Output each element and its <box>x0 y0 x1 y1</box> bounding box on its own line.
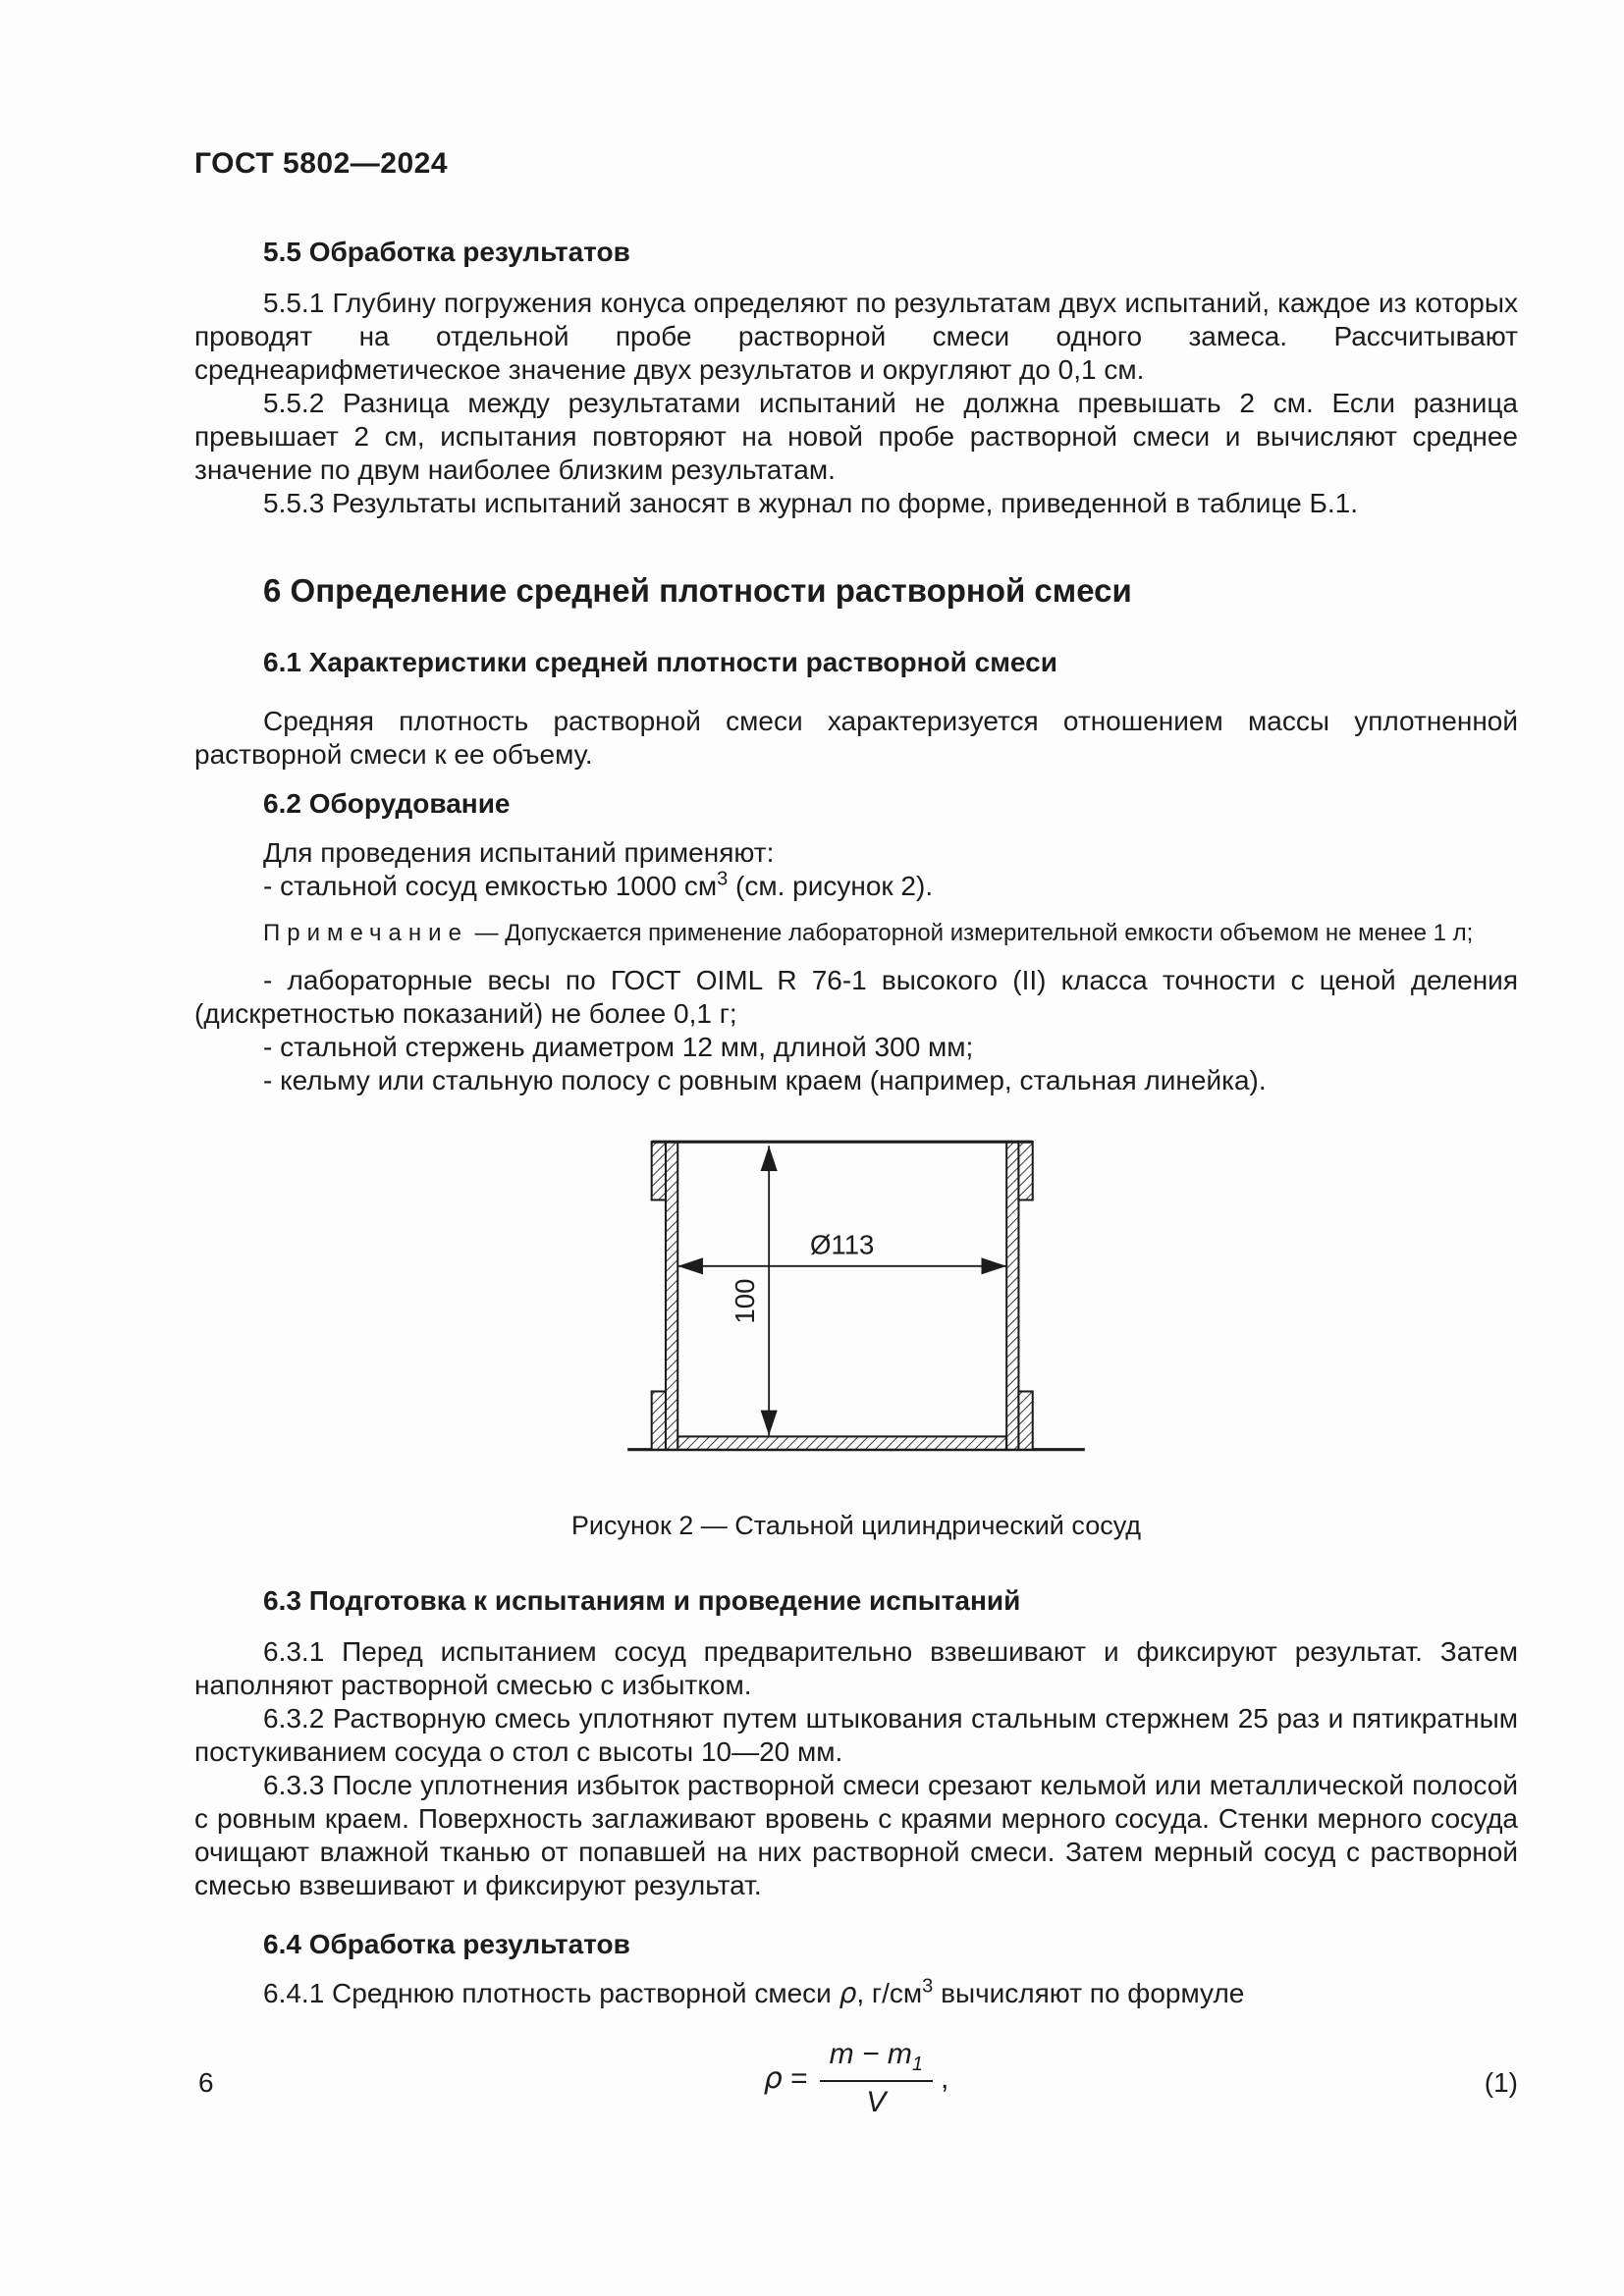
vessel-right-wall <box>1006 1142 1018 1450</box>
vessel-left-top-flange <box>652 1142 666 1200</box>
formula-lhs-rho: ρ <box>764 2061 783 2096</box>
paragraph-5-5-1: 5.5.1 Глубину погружения конуса определя… <box>194 287 1518 387</box>
list-item-text: - стальной сосуд емкостью 1000 см <box>263 871 717 901</box>
heading-6-3: 6.3 Подготовка к испытаниям и проведение… <box>194 1584 1518 1618</box>
vessel-right-top-flange <box>1018 1142 1032 1200</box>
formula-equals: = <box>790 2062 808 2096</box>
paragraph-6-3-1: 6.3.1 Перед испытанием сосуд предварител… <box>194 1635 1518 1702</box>
paragraph-5-5-2: 5.5.2 Разница между результатами испытан… <box>194 387 1518 487</box>
dimension-label-height: 100 <box>730 1279 760 1324</box>
formula-numerator-subscript: 1 <box>912 2054 923 2075</box>
vessel-left-bottom-flange <box>652 1391 666 1449</box>
formula-denominator-var: V <box>866 2086 886 2118</box>
note-text: — Допускается применение лабораторной из… <box>475 920 1474 946</box>
formula-denominator: V <box>820 2082 933 2119</box>
heading-6-4: 6.4 Обработка результатов <box>194 1928 1518 1961</box>
formula-fraction: m − m1 V <box>820 2038 933 2119</box>
note-measuring-vessel: Примечание — Допускается применение лабо… <box>194 919 1518 948</box>
paragraph-6-2-intro: Для проведения испытаний применяют: <box>194 836 1518 870</box>
list-item-steel-rod: - стальной стержень диаметром 12 мм, дли… <box>194 1031 1518 1064</box>
heading-section-6: 6 Определение средней плотности растворн… <box>194 571 1518 611</box>
page-number: 6 <box>198 2067 214 2099</box>
paragraph-text: , г/см <box>856 1978 922 2008</box>
formula-row: ρ = m − m1 V , (1) <box>194 2038 1518 2156</box>
list-item-trowel: - кельму или стальную полосу с ровным кр… <box>194 1064 1518 1097</box>
figure-2-steel-vessel: 100 Ø113 <box>194 1133 1518 1468</box>
list-item-text: (см. рисунок 2). <box>728 871 933 901</box>
vessel-right-bottom-flange <box>1018 1391 1032 1449</box>
document-code-header: ГОСТ 5802—2024 <box>194 147 1518 181</box>
list-item-steel-vessel: - стальной сосуд емкостью 1000 см3 (см. … <box>194 870 1518 903</box>
formula-number: (1) <box>1485 2067 1518 2099</box>
heading-5-5: 5.5 Обработка результатов <box>194 236 1518 269</box>
figure-2-caption: Рисунок 2 — Стальной цилиндрический сосу… <box>194 1510 1518 1541</box>
page-content: ГОСТ 5802—2024 5.5 Обработка результатов… <box>194 147 1518 2156</box>
density-formula: ρ = m − m1 V , <box>194 2038 1518 2119</box>
document-page: ГОСТ 5802—2024 5.5 Обработка результатов… <box>0 0 1624 2296</box>
paragraph-5-5-3: 5.5.3 Результаты испытаний заносят в жур… <box>194 487 1518 520</box>
paragraph-6-3-2: 6.3.2 Растворную смесь уплотняют путем ш… <box>194 1702 1518 1769</box>
rho-symbol: ρ <box>839 1977 857 2009</box>
formula-comma: , <box>941 2062 948 2096</box>
formula-numerator-vars: m − m <box>830 2038 912 2070</box>
steel-vessel-drawing: 100 Ø113 <box>625 1133 1087 1464</box>
note-label: Примечание <box>263 920 468 946</box>
superscript-3: 3 <box>717 869 728 890</box>
paragraph-text: вычисляют по формуле <box>933 1978 1244 2008</box>
paragraph-6-3-3: 6.3.3 После уплотнения избыток растворно… <box>194 1769 1518 1902</box>
heading-6-2: 6.2 Оборудование <box>194 787 1518 821</box>
formula-numerator: m − m1 <box>820 2038 933 2082</box>
dimension-label-diameter: Ø113 <box>810 1230 874 1260</box>
paragraph-6-4-1: 6.4.1 Среднюю плотность растворной смеси… <box>194 1977 1518 2010</box>
vessel-left-wall <box>666 1142 677 1450</box>
paragraph-text: 6.4.1 Среднюю плотность растворной смеси <box>263 1978 839 2008</box>
superscript-3: 3 <box>922 1976 933 1998</box>
paragraph-6-1: Средняя плотность растворной смеси харак… <box>194 705 1518 772</box>
vessel-bottom-plate <box>677 1436 1006 1449</box>
list-item-lab-scales: - лабораторные весы по ГОСТ OIML R 76-1 … <box>194 964 1518 1031</box>
heading-6-1: 6.1 Характеристики средней плотности рас… <box>194 646 1518 679</box>
